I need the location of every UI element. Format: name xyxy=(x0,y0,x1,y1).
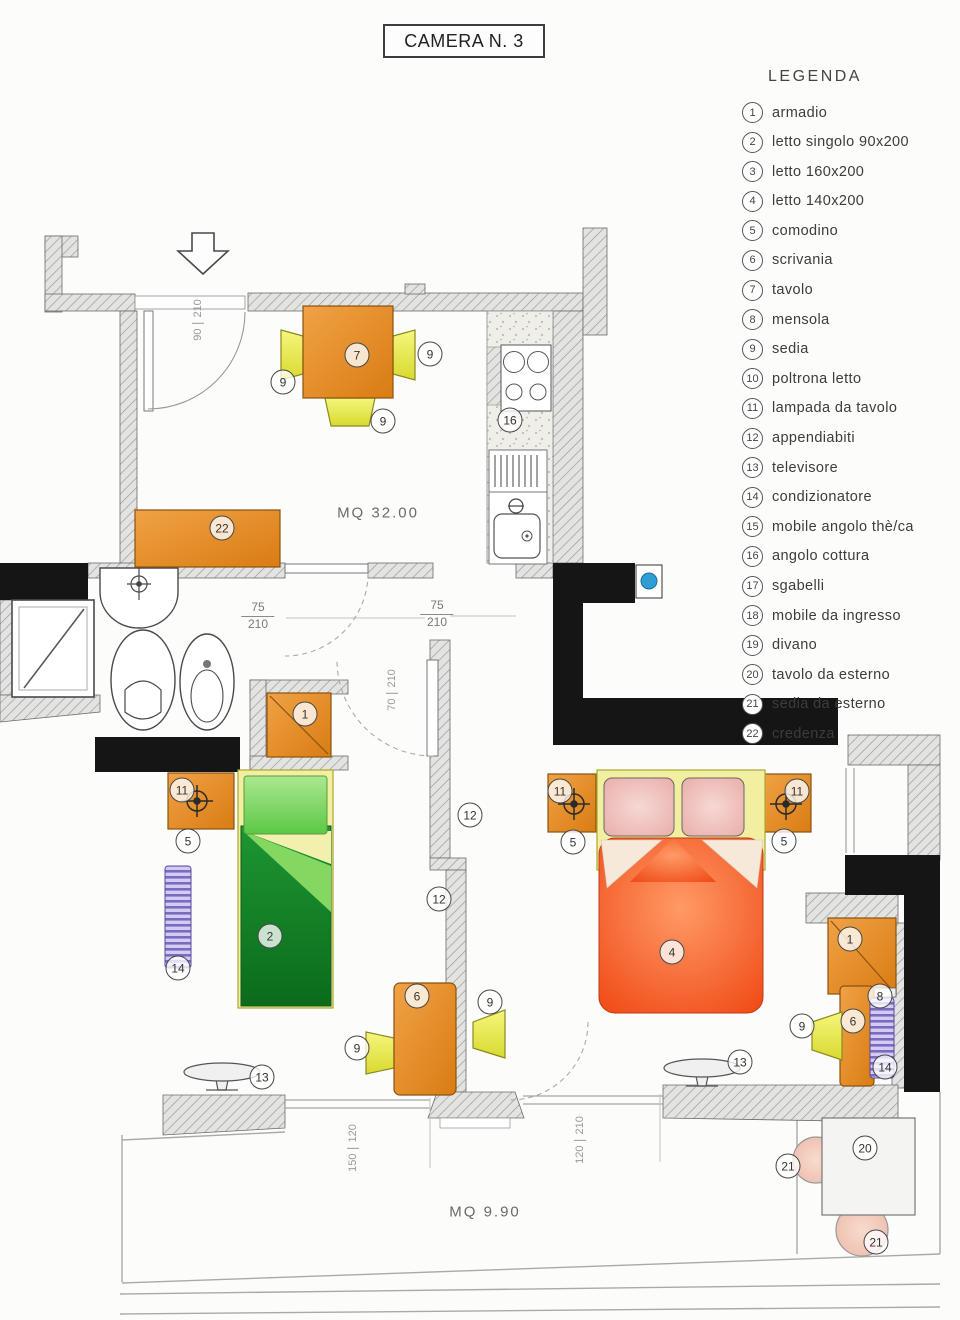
chair xyxy=(812,1012,842,1060)
credenza xyxy=(135,510,280,567)
floor-plan-page: CAMERA N. 3 LEGENDA 1 armadio 2 letto si… xyxy=(0,0,960,1320)
radiator xyxy=(870,998,894,1078)
desk xyxy=(394,983,456,1095)
sink-basin xyxy=(494,514,540,558)
drainboard xyxy=(489,450,547,492)
bedroom-left xyxy=(165,770,333,1008)
entrance-arrow-icon xyxy=(178,233,228,274)
chair xyxy=(393,330,415,380)
chair xyxy=(366,1032,394,1074)
bidet xyxy=(180,634,234,730)
pillow xyxy=(682,778,744,836)
terrace-furniture xyxy=(793,1118,915,1256)
dining-set xyxy=(281,306,415,426)
chair xyxy=(325,398,375,426)
blue-dot xyxy=(641,573,657,589)
pillow xyxy=(244,776,327,834)
chair xyxy=(473,1010,505,1058)
radiator xyxy=(165,866,191,968)
tv xyxy=(664,1059,740,1086)
kitchen-corner xyxy=(487,311,553,564)
pillow xyxy=(604,778,674,836)
outdoor-table xyxy=(822,1118,915,1215)
wardrobe-right xyxy=(828,918,896,994)
tv xyxy=(184,1063,260,1090)
chair xyxy=(281,330,303,380)
desk xyxy=(840,986,874,1086)
wall-fixture xyxy=(636,565,662,598)
desk-area xyxy=(366,660,505,1095)
toilet xyxy=(111,630,175,730)
bedroom-right xyxy=(548,770,896,1086)
coat-hook-door xyxy=(427,660,438,756)
wardrobe-left xyxy=(267,693,331,757)
table xyxy=(303,306,393,398)
floor-plan-drawing xyxy=(0,0,960,1320)
